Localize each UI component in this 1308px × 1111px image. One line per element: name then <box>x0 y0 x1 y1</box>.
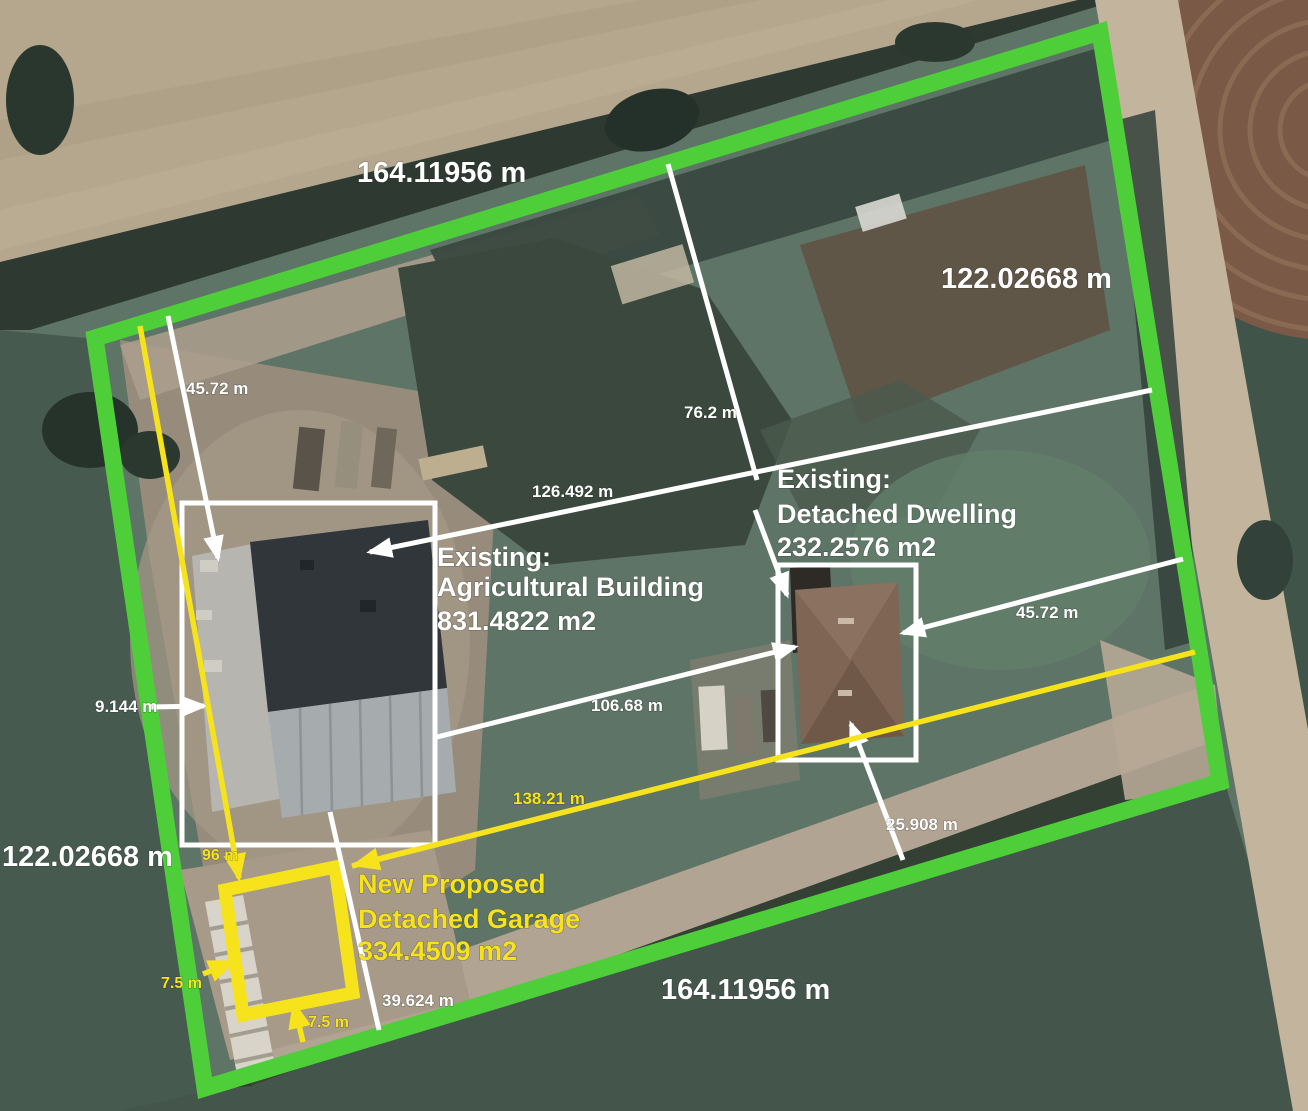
site-plan-map: 164.11956 m 122.02668 m 164.11956 m 122.… <box>0 0 1308 1111</box>
measure-label-upper-width: 126.492 m <box>532 482 613 501</box>
boundary-length-top-label: 164.11956 m <box>357 157 526 189</box>
measure-label-garage-rear: 7.5 m <box>308 1014 349 1031</box>
measure-label-garage-side: 7.5 m <box>161 975 202 992</box>
measure-label-garage-to-boundary: 39.624 m <box>382 991 454 1010</box>
agricultural-label-line1: Existing: <box>437 542 551 572</box>
dwelling-label-line2: Detached Dwelling <box>777 499 1017 529</box>
boundary-length-left-label: 122.02668 m <box>2 841 173 873</box>
measure-label-dwelling-rear: 25.908 m <box>886 815 958 834</box>
boundary-length-right-label: 122.02668 m <box>941 263 1112 295</box>
agricultural-label-line3: 831.4822 m2 <box>437 606 596 636</box>
garage-label-line3: 334.4509 m2 <box>358 936 517 966</box>
measure-label-mid-width: 106.68 m <box>591 696 663 715</box>
dwelling-label-line1: Existing: <box>777 464 891 494</box>
measure-label-north-gate-depth: 76.2 m <box>684 403 737 422</box>
measure-label-west-depth: 96 m <box>202 847 238 864</box>
dwelling-label-line3: 232.2576 m2 <box>777 532 936 562</box>
measure-label-south-diagonal: 138.21 m <box>513 789 585 808</box>
measure-label-west-setback: 9.144 m <box>95 697 157 716</box>
measure-label-east-setback: 45.72 m <box>1016 603 1078 622</box>
agricultural-label-line2: Agricultural Building <box>437 572 704 602</box>
garage-label-line1: New Proposed <box>358 869 546 899</box>
measure-label-nw-setback: 45.72 m <box>186 379 248 398</box>
site-plan-screenshot: 164.11956 m 122.02668 m 164.11956 m 122.… <box>0 0 1308 1111</box>
boundary-length-bottom-label: 164.11956 m <box>661 974 830 1006</box>
garage-label-line2: Detached Garage <box>358 904 580 934</box>
measure-line-west-setback-arrow <box>151 706 204 707</box>
